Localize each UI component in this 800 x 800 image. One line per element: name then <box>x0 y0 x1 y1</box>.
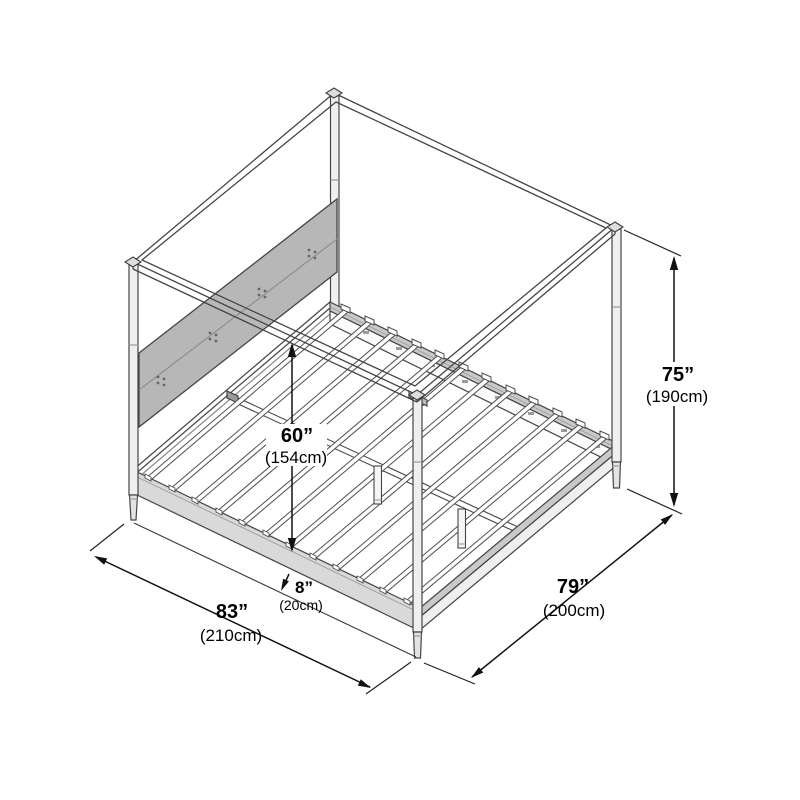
arrowhead-down-right-icon <box>358 679 371 688</box>
diagram-canvas: 75” (190cm) 60” (154cm) 8” (20cm) 83” (2… <box>0 0 800 800</box>
dimension-width: 79” (200cm) <box>471 514 673 678</box>
post-right <box>612 229 621 488</box>
arrowhead-down-icon <box>670 493 678 507</box>
dim-interior-cm: (154cm) <box>265 448 327 467</box>
arrowhead-up-icon <box>670 256 678 270</box>
dim-interior-inches: 60” <box>281 425 313 447</box>
dim-width-inches: 79” <box>557 576 589 598</box>
dim-length-inches: 83” <box>216 601 248 623</box>
dim-width-cm: (200cm) <box>543 601 605 620</box>
arrowhead-up-left-icon <box>94 556 107 565</box>
dim-underbed-inches: 8” <box>295 578 313 597</box>
headboard-seam <box>139 239 337 390</box>
bed-dimension-diagram: 75” (190cm) 60” (154cm) 8” (20cm) 83” (2… <box>0 0 800 800</box>
arrowhead-down-left-icon <box>281 579 289 591</box>
dim-underbed-cm: (20cm) <box>279 597 323 613</box>
dim-length-cm: (210cm) <box>200 626 262 645</box>
post-left <box>129 264 138 520</box>
dim-height-inches: 75” <box>662 364 694 386</box>
dimension-height: 75” (190cm) <box>646 256 708 507</box>
dim-height-cm: (190cm) <box>646 387 708 406</box>
